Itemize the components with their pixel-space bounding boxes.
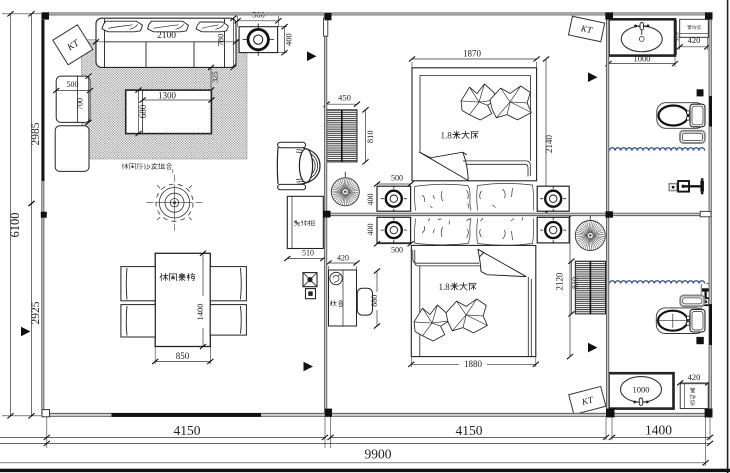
svg-text:6100: 6100 (8, 213, 22, 238)
svg-text:1870: 1870 (463, 49, 482, 59)
svg-text:2925: 2925 (30, 301, 42, 324)
svg-text:4150: 4150 (456, 423, 483, 438)
svg-text:400: 400 (284, 33, 294, 46)
svg-text:420: 420 (688, 372, 701, 382)
svg-text:1400: 1400 (645, 423, 672, 438)
svg-text:1000: 1000 (634, 53, 651, 63)
svg-text:700: 700 (76, 98, 85, 110)
svg-text:680: 680 (138, 104, 148, 118)
svg-text:1400: 1400 (195, 304, 205, 321)
svg-text:2140: 2140 (544, 135, 554, 154)
svg-text:450: 450 (338, 93, 351, 103)
svg-text:1300: 1300 (158, 90, 177, 100)
svg-text:2985: 2985 (30, 122, 42, 145)
svg-text:810: 810 (571, 277, 580, 289)
svg-text:810: 810 (365, 130, 375, 143)
svg-text:780: 780 (216, 34, 226, 47)
svg-text:2100: 2100 (157, 31, 176, 41)
svg-text:1.8: 1.8 (439, 282, 451, 292)
svg-text:4150: 4150 (174, 423, 201, 438)
svg-text:500: 500 (67, 80, 79, 89)
svg-text:500: 500 (391, 246, 403, 255)
svg-text:1880: 1880 (464, 359, 483, 369)
svg-text:850: 850 (176, 351, 190, 361)
svg-text:400: 400 (366, 194, 375, 206)
svg-text:420: 420 (688, 35, 701, 45)
svg-text:420: 420 (337, 254, 349, 263)
svg-text:1000: 1000 (633, 384, 650, 394)
svg-text:1.8: 1.8 (441, 131, 453, 141)
svg-text:500: 500 (391, 174, 403, 183)
svg-text:9900: 9900 (365, 447, 392, 462)
svg-text:325: 325 (211, 71, 220, 83)
svg-text:510: 510 (302, 249, 314, 258)
svg-text:400: 400 (366, 224, 375, 236)
svg-text:2120: 2120 (555, 272, 565, 291)
svg-text:880: 880 (370, 295, 379, 307)
